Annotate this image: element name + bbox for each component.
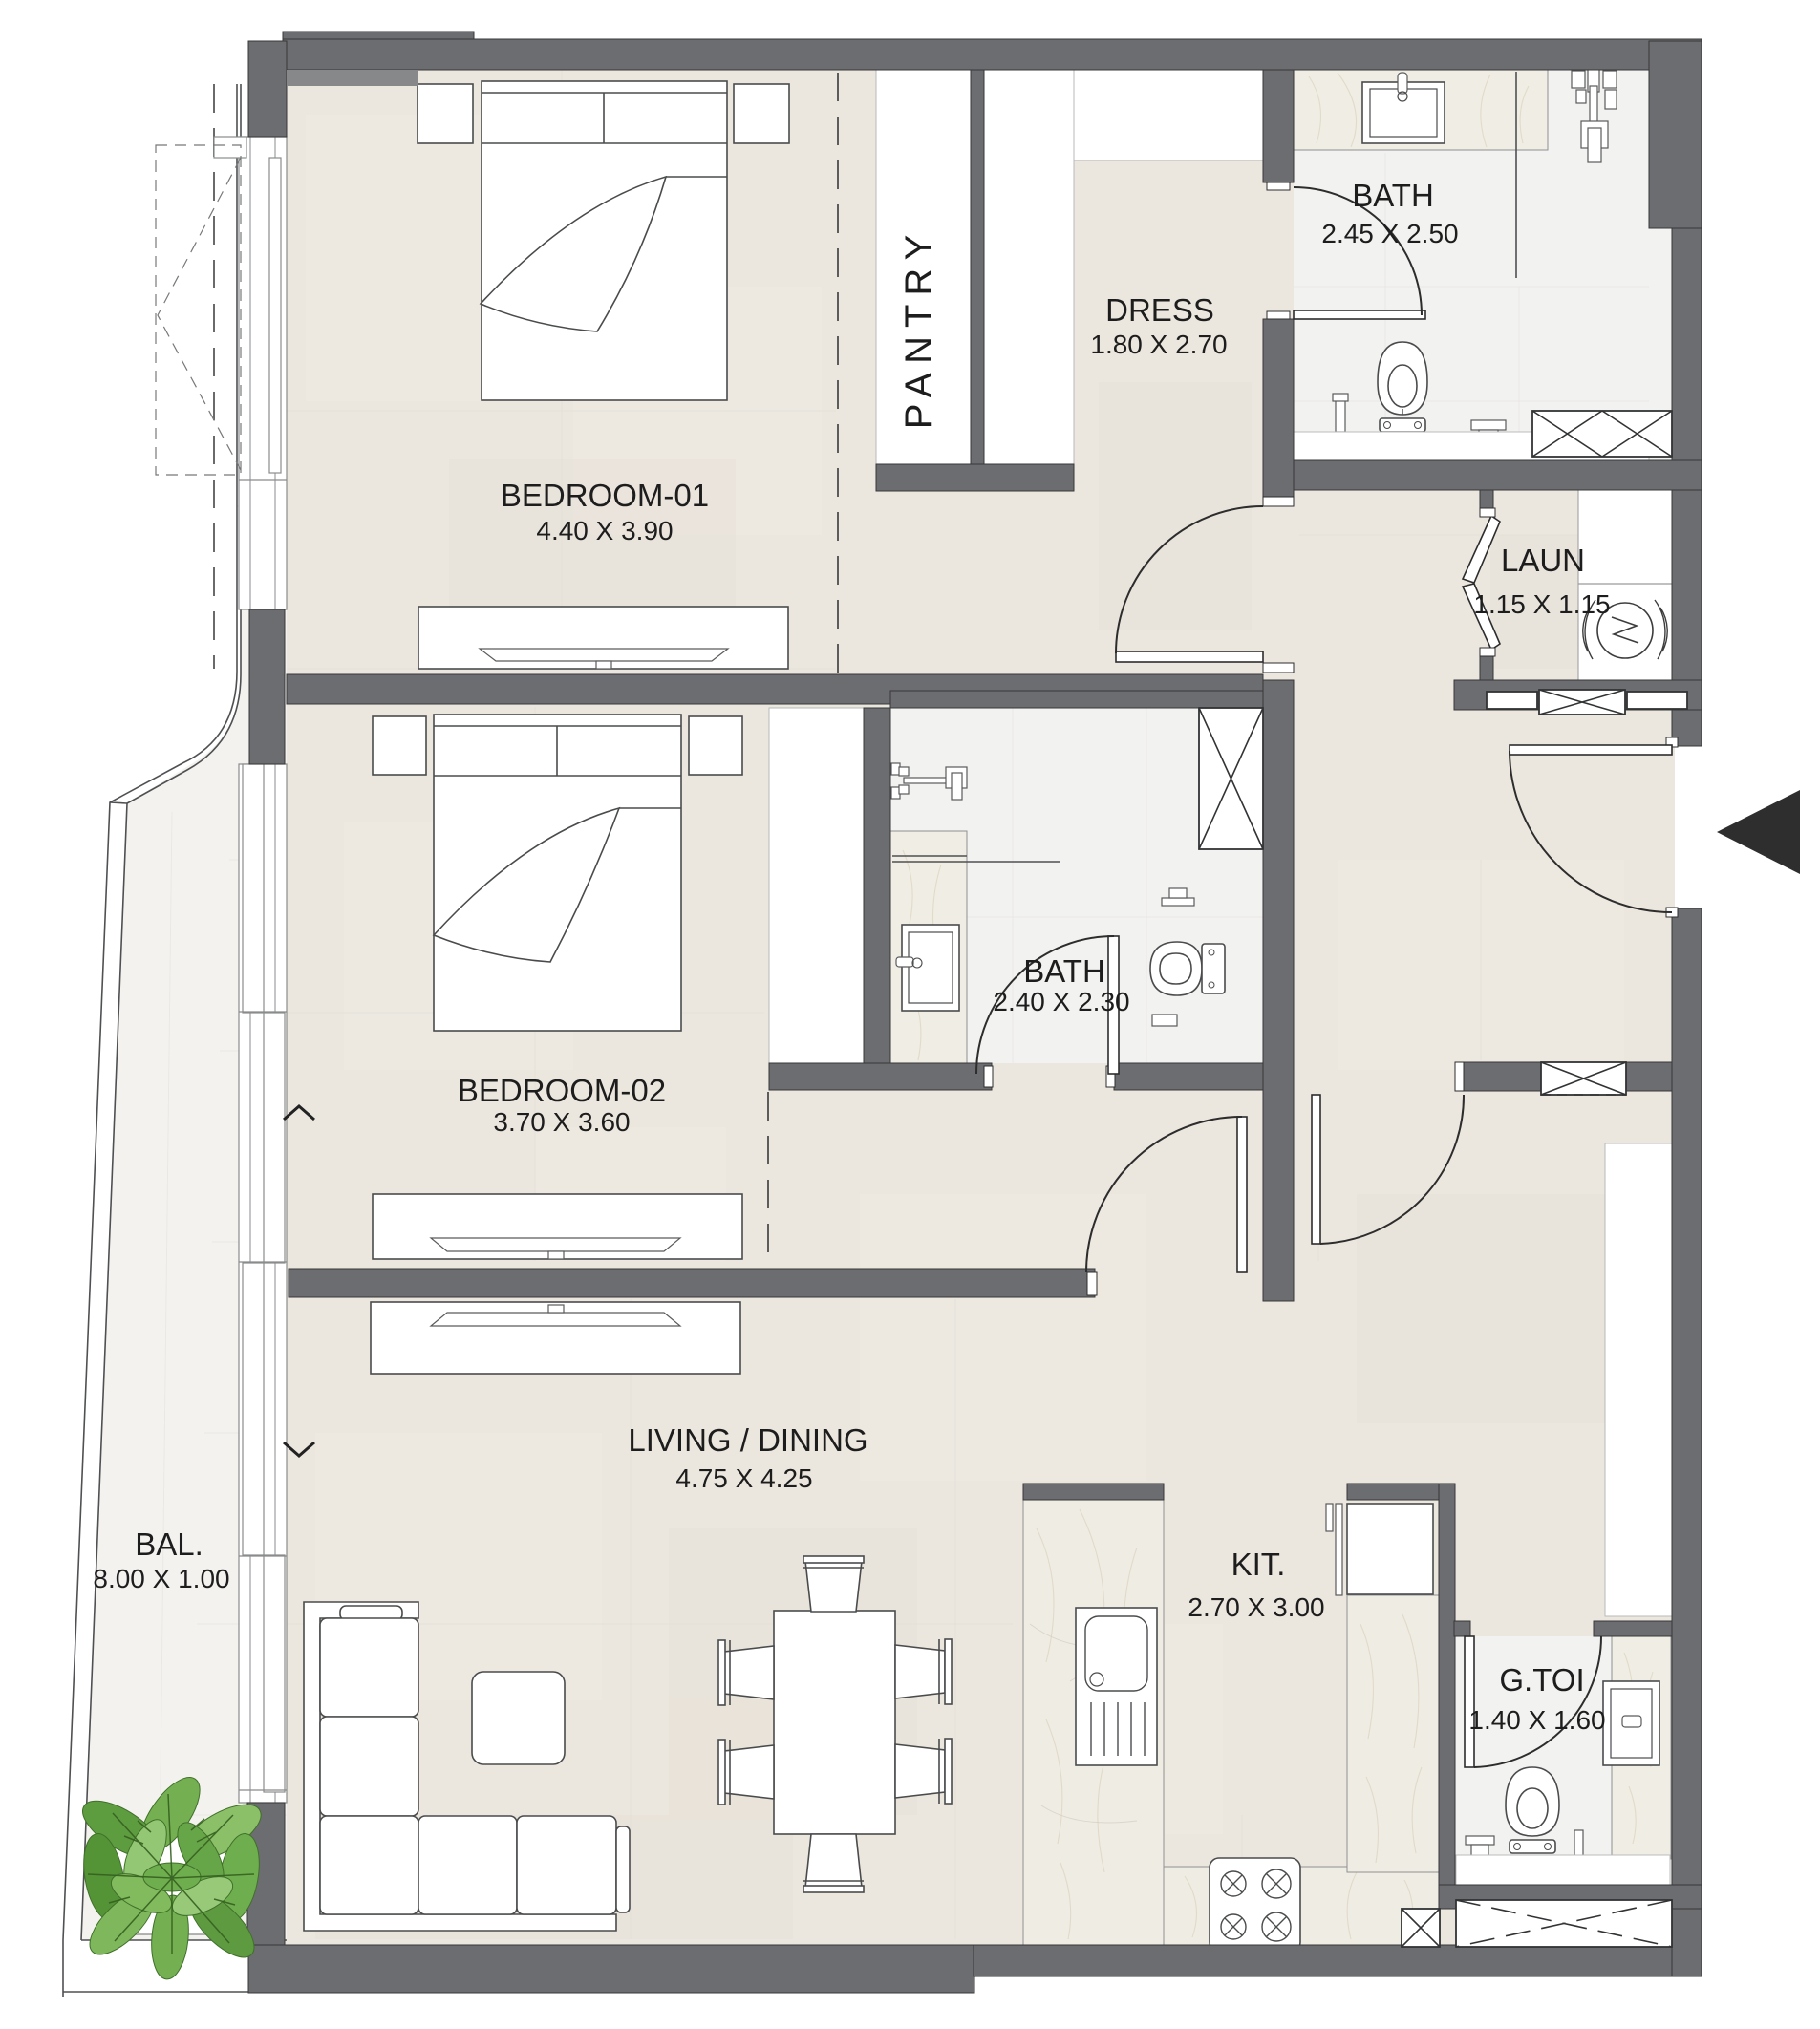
svg-text:LAUN: LAUN [1501,543,1585,578]
svg-text:BATH: BATH [1023,953,1105,989]
svg-text:KIT.: KIT. [1231,1547,1286,1582]
svg-text:8.00 X 1.00: 8.00 X 1.00 [93,1564,229,1593]
svg-text:BEDROOM-02: BEDROOM-02 [458,1073,666,1108]
svg-text:4.40 X 3.90: 4.40 X 3.90 [536,516,673,545]
svg-text:3.70 X 3.60: 3.70 X 3.60 [493,1107,630,1137]
svg-text:BAL.: BAL. [135,1527,203,1562]
svg-text:G.TOI: G.TOI [1499,1662,1584,1698]
svg-text:LIVING / DINING: LIVING / DINING [628,1422,867,1458]
svg-text:DRESS: DRESS [1105,292,1214,328]
svg-text:1.15 X 1.15: 1.15 X 1.15 [1473,589,1610,619]
svg-text:PANTRY: PANTRY [898,226,940,430]
svg-text:1.40 X 1.60: 1.40 X 1.60 [1468,1705,1605,1735]
svg-text:4.75 X 4.25: 4.75 X 4.25 [675,1463,812,1493]
svg-text:2.70 X 3.00: 2.70 X 3.00 [1188,1592,1324,1622]
svg-text:BEDROOM-01: BEDROOM-01 [501,478,709,513]
svg-text:1.80 X 2.70: 1.80 X 2.70 [1090,330,1227,359]
svg-text:BATH: BATH [1352,178,1434,213]
svg-text:2.45 X 2.50: 2.45 X 2.50 [1321,219,1458,248]
svg-text:2.40 X 2.30: 2.40 X 2.30 [993,987,1129,1016]
